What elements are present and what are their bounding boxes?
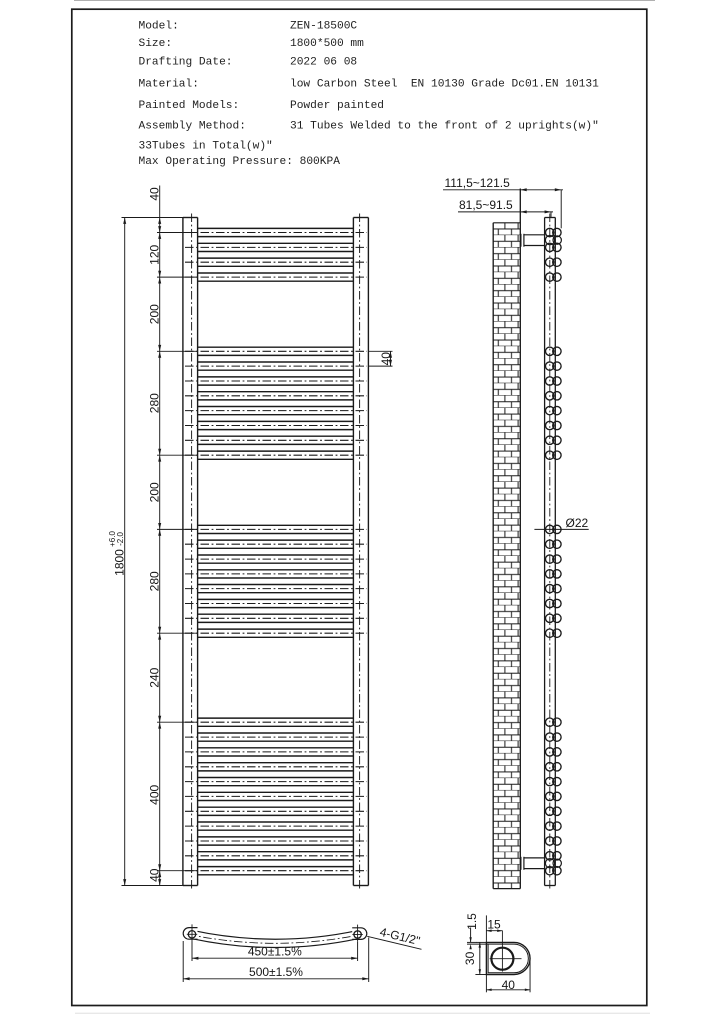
svg-text:111,5~121.5: 111,5~121.5: [445, 176, 511, 190]
svg-text:31 Tubes Welded to the front o: 31 Tubes Welded to the front of 2 uprigh…: [290, 121, 599, 133]
svg-text:Material:: Material:: [139, 79, 199, 91]
svg-text:Model:: Model:: [139, 21, 179, 33]
svg-text:30: 30: [463, 951, 477, 965]
svg-text:40: 40: [379, 352, 393, 366]
svg-text:2022 06 08: 2022 06 08: [290, 57, 357, 69]
svg-text:Powder painted: Powder painted: [290, 100, 384, 112]
svg-text:1800*500 mm: 1800*500 mm: [290, 38, 364, 50]
svg-text:81,5~91.5: 81,5~91.5: [459, 198, 513, 212]
svg-text:500±1.5%: 500±1.5%: [249, 965, 303, 979]
svg-text:40: 40: [148, 187, 162, 201]
svg-text:33Tubes in Total(w)″: 33Tubes in Total(w)″: [139, 141, 273, 153]
svg-text:400: 400: [148, 784, 162, 804]
svg-text:200: 200: [148, 482, 162, 502]
svg-text:Size:: Size:: [139, 38, 173, 50]
svg-text:280: 280: [148, 571, 162, 591]
svg-text:240: 240: [148, 667, 162, 687]
svg-text:ZEN-18500C: ZEN-18500C: [290, 21, 357, 33]
svg-text:40: 40: [502, 978, 516, 992]
svg-text:Painted Models:: Painted Models:: [139, 100, 240, 112]
svg-text:450±1.5%: 450±1.5%: [248, 945, 302, 959]
svg-text:Drafting Date:: Drafting Date:: [139, 57, 233, 69]
svg-text:1800: 1800: [112, 549, 126, 576]
svg-text:Assembly Method:: Assembly Method:: [139, 121, 246, 133]
svg-text:120: 120: [148, 244, 162, 264]
svg-text:280: 280: [148, 393, 162, 413]
svg-text:Ø22: Ø22: [566, 516, 589, 530]
svg-text:40: 40: [148, 868, 162, 882]
svg-text:low Carbon Steel EN 10130 Gra: low Carbon Steel EN 10130 Grade Dc01.EN …: [290, 79, 599, 91]
svg-text:Max Operating Pressure: 800KPA: Max Operating Pressure: 800KPA: [139, 156, 341, 168]
svg-text:200: 200: [148, 304, 162, 324]
svg-text:15: 15: [487, 918, 501, 932]
svg-text:-2.0: -2.0: [116, 532, 125, 546]
svg-text:1.5: 1.5: [465, 913, 479, 930]
